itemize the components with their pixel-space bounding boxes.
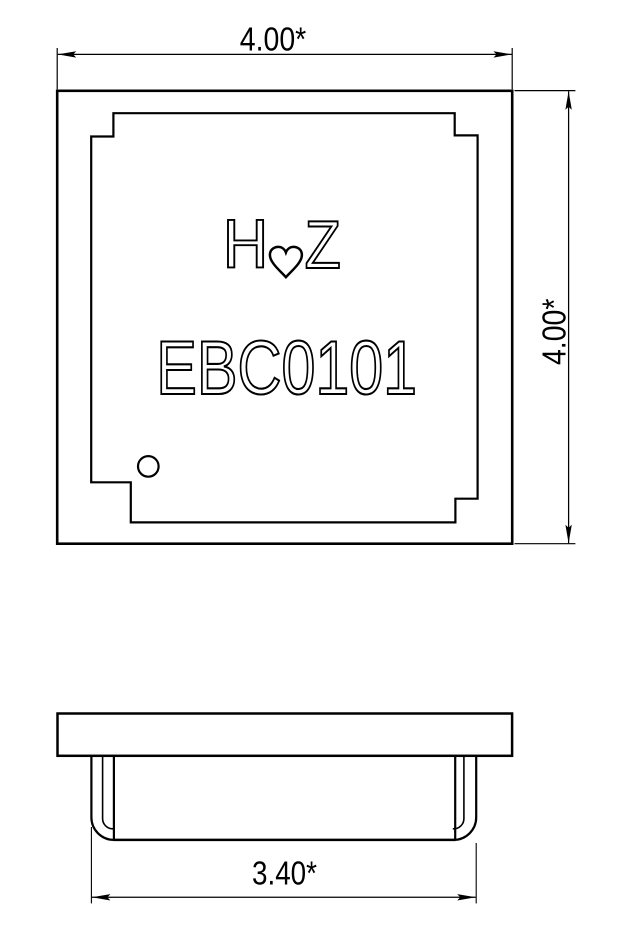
svg-text:3.40*: 3.40* xyxy=(252,855,317,892)
svg-text:Z: Z xyxy=(305,206,341,283)
svg-text:4.00*: 4.00* xyxy=(240,21,307,58)
svg-text:4.00*: 4.00* xyxy=(536,298,573,365)
svg-text:EBC0101: EBC0101 xyxy=(156,325,417,410)
